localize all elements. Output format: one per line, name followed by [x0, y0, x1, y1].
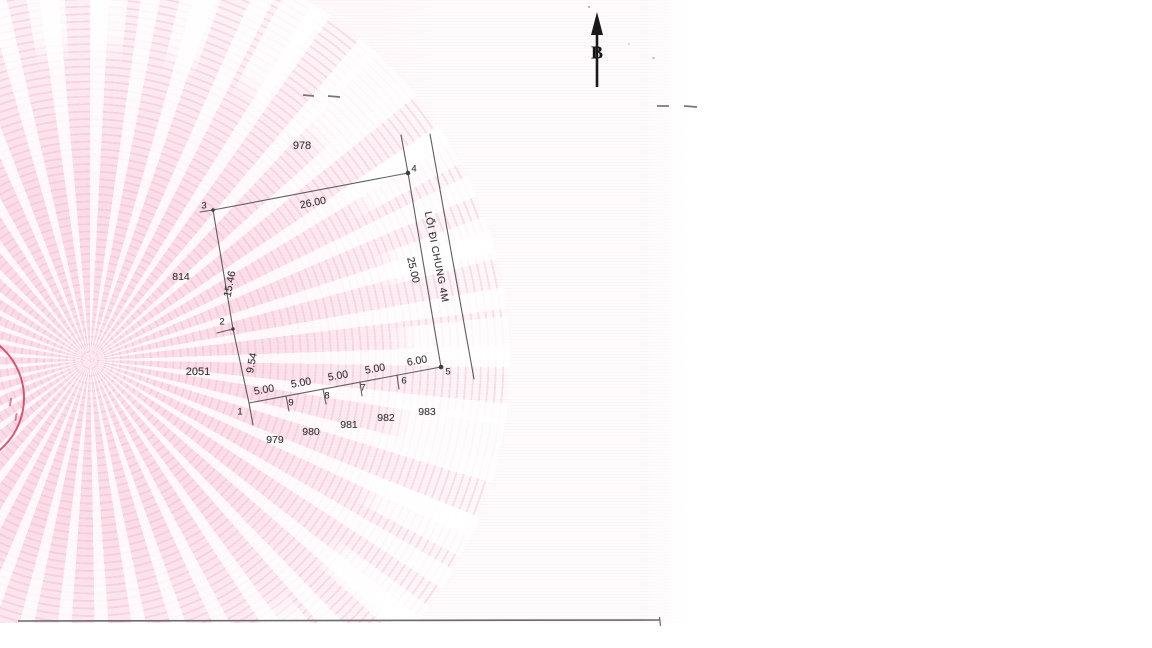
vertex-label-5: 5: [445, 367, 450, 378]
parcel-label-979: 979: [266, 434, 284, 446]
parcel-label-2051: 2051: [186, 366, 210, 378]
vertex-label-1: 1: [237, 407, 242, 418]
parcel-label-980: 980: [302, 426, 320, 438]
vertex-label-8: 8: [324, 391, 329, 402]
scanned-cadastral-page: { "compass": { "label": "B" }, "road": {…: [0, 0, 1152, 648]
vertex-label-9: 9: [288, 398, 293, 409]
guilloche-petal-ring: [0, 0, 510, 623]
parcel-label-981: 981: [340, 419, 358, 431]
certificate-page: [0, 0, 702, 623]
scan-speck: [628, 43, 630, 45]
scan-speck: [652, 57, 655, 59]
scan-speck: [588, 6, 590, 8]
parcel-label-983: 983: [418, 406, 436, 418]
vertex-label-3: 3: [201, 201, 206, 212]
vertex-label-4: 4: [411, 164, 416, 175]
vertex-label-7: 7: [360, 383, 365, 394]
parcel-label-978: 978: [293, 140, 311, 152]
parcel-label-982: 982: [377, 412, 395, 424]
vertex-label-6: 6: [401, 376, 406, 387]
vertex-label-2: 2: [219, 317, 224, 328]
north-label: B: [591, 43, 603, 64]
page-edge-fade: [642, 0, 702, 623]
parcel-label-814: 814: [172, 271, 190, 283]
